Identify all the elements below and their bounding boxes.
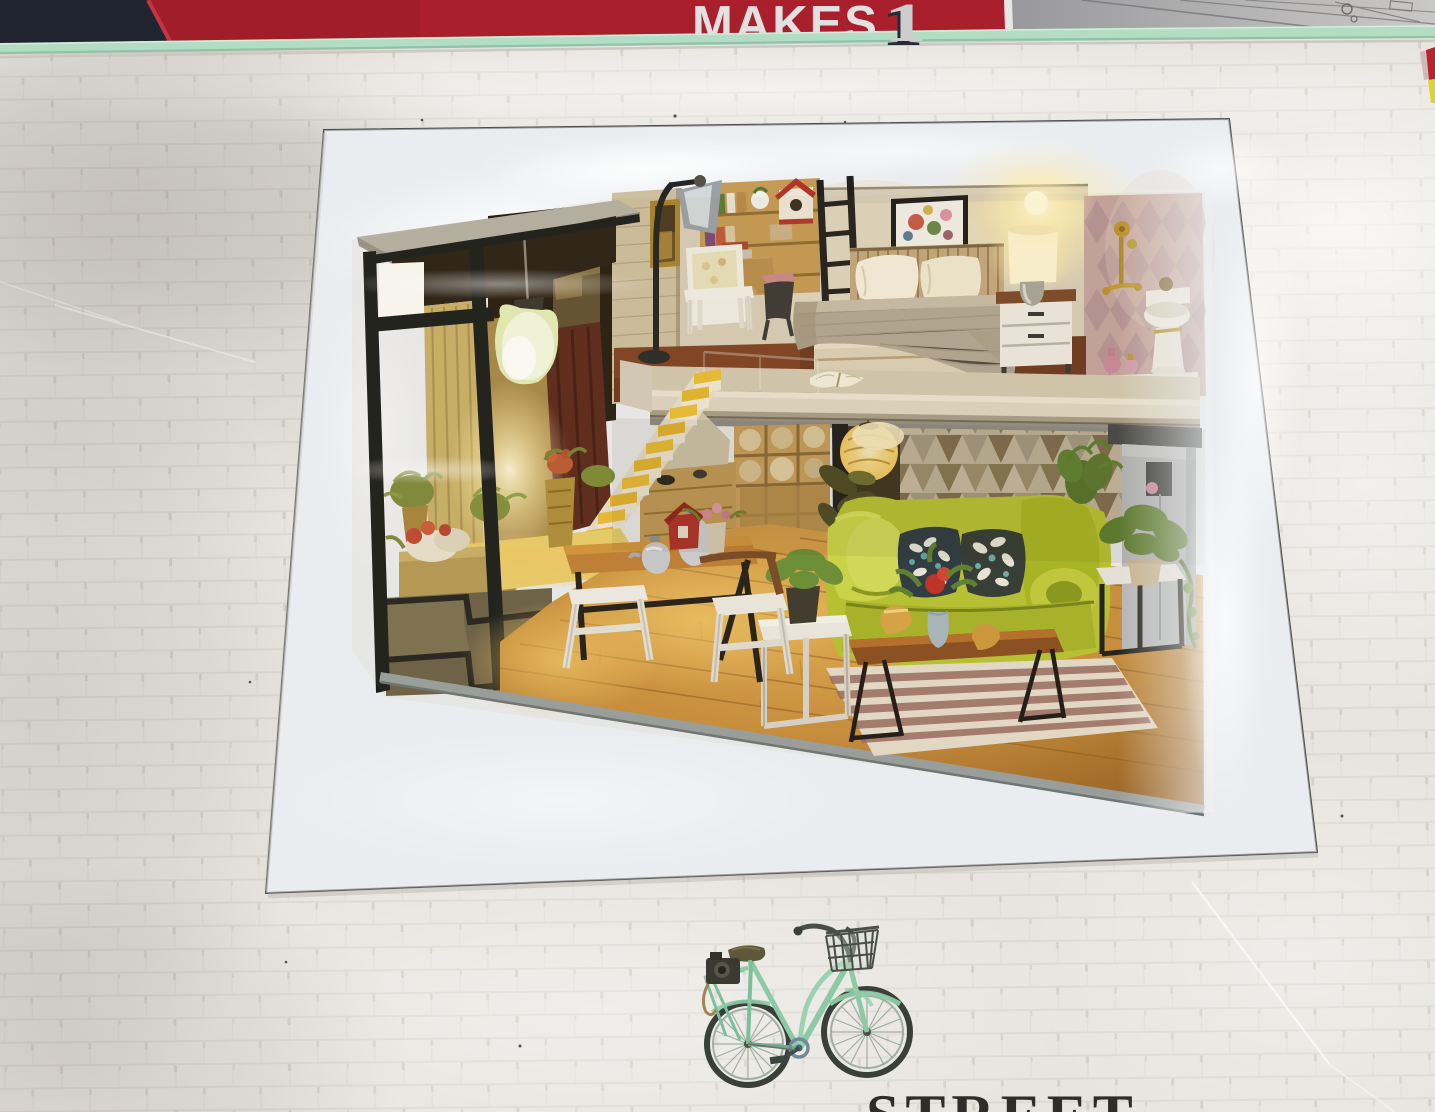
svg-text:1: 1 <box>884 0 927 53</box>
svg-text:STREET: STREET <box>866 1083 1139 1112</box>
